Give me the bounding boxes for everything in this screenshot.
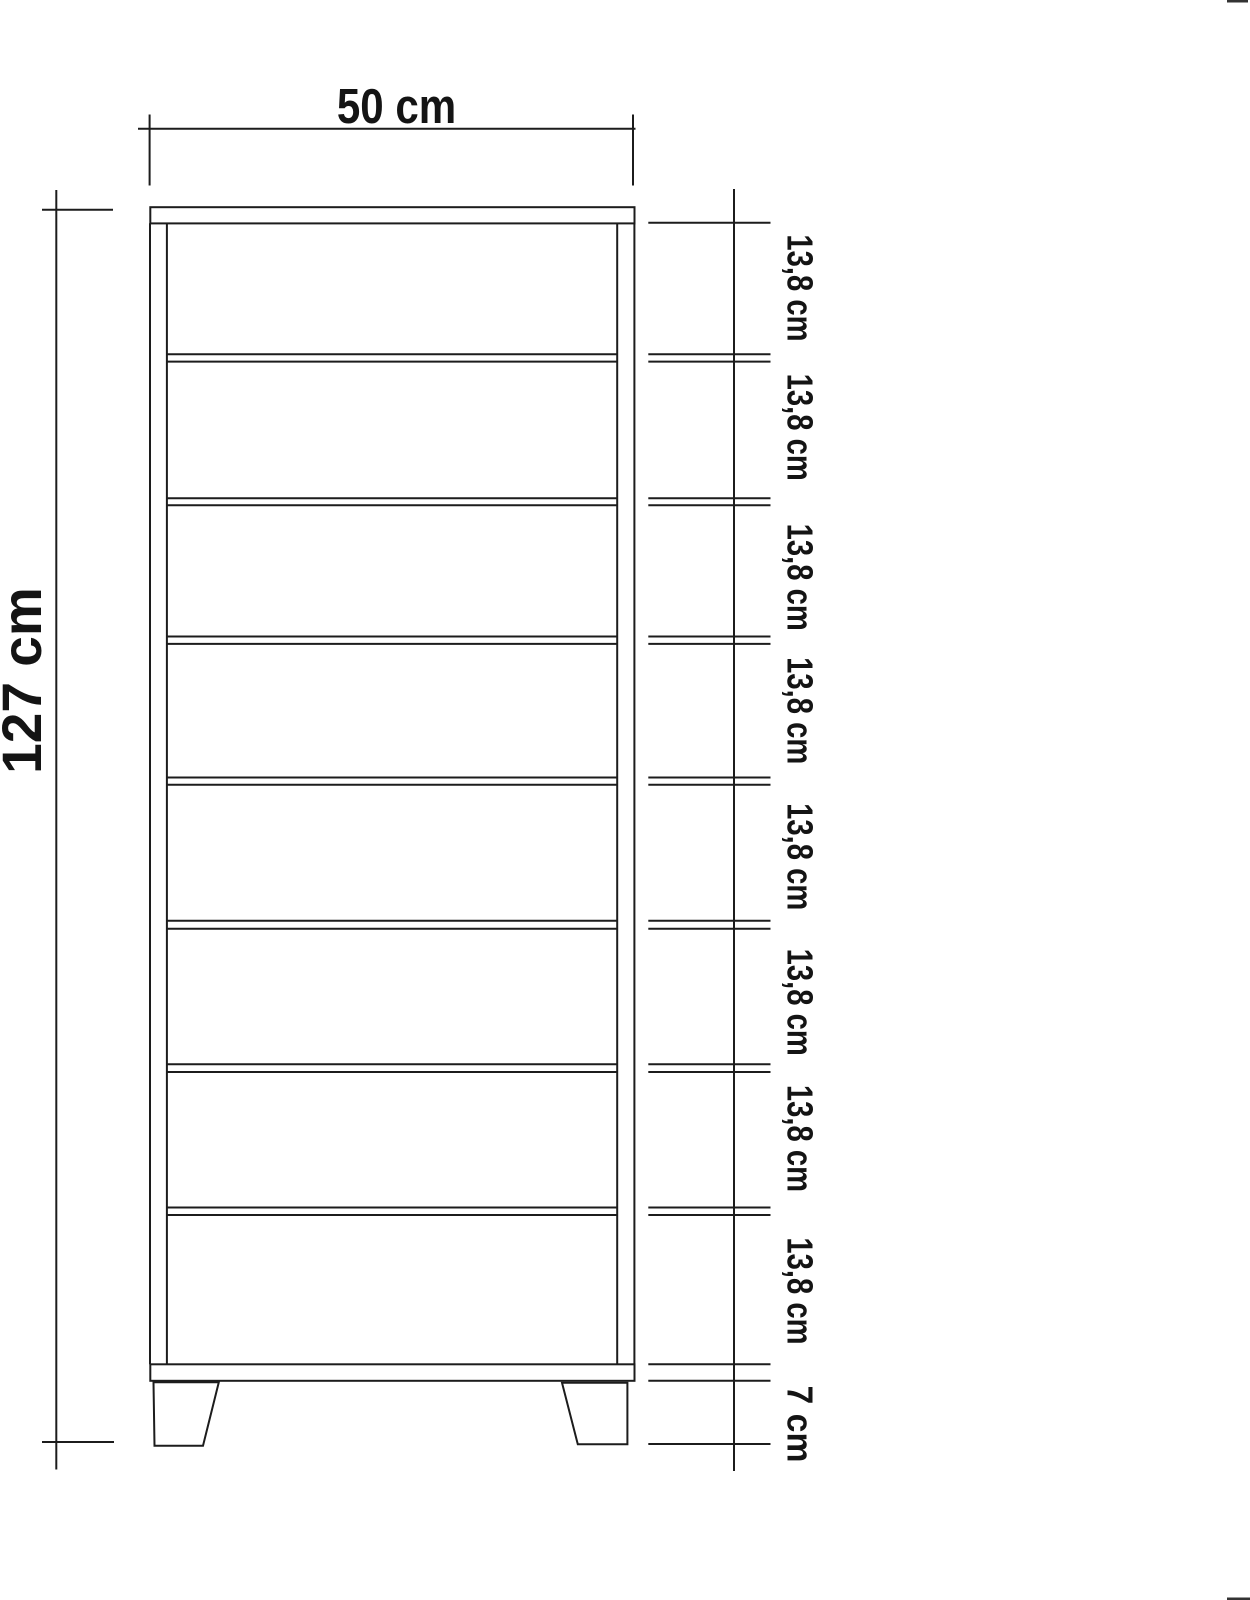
svg-text:7 cm: 7 cm	[779, 1386, 819, 1463]
svg-text:13,8 cm: 13,8 cm	[780, 374, 821, 481]
svg-text:13,8 cm: 13,8 cm	[780, 1085, 821, 1192]
svg-text:13,8 cm: 13,8 cm	[780, 1237, 821, 1344]
svg-text:13,8 cm: 13,8 cm	[780, 234, 821, 341]
svg-text:50 cm: 50 cm	[337, 78, 456, 134]
svg-text:127 cm: 127 cm	[0, 587, 53, 774]
svg-text:13,8 cm: 13,8 cm	[780, 657, 821, 764]
svg-text:13,8 cm: 13,8 cm	[780, 949, 821, 1056]
svg-text:13,8 cm: 13,8 cm	[780, 524, 821, 631]
svg-text:13,8 cm: 13,8 cm	[780, 803, 821, 910]
